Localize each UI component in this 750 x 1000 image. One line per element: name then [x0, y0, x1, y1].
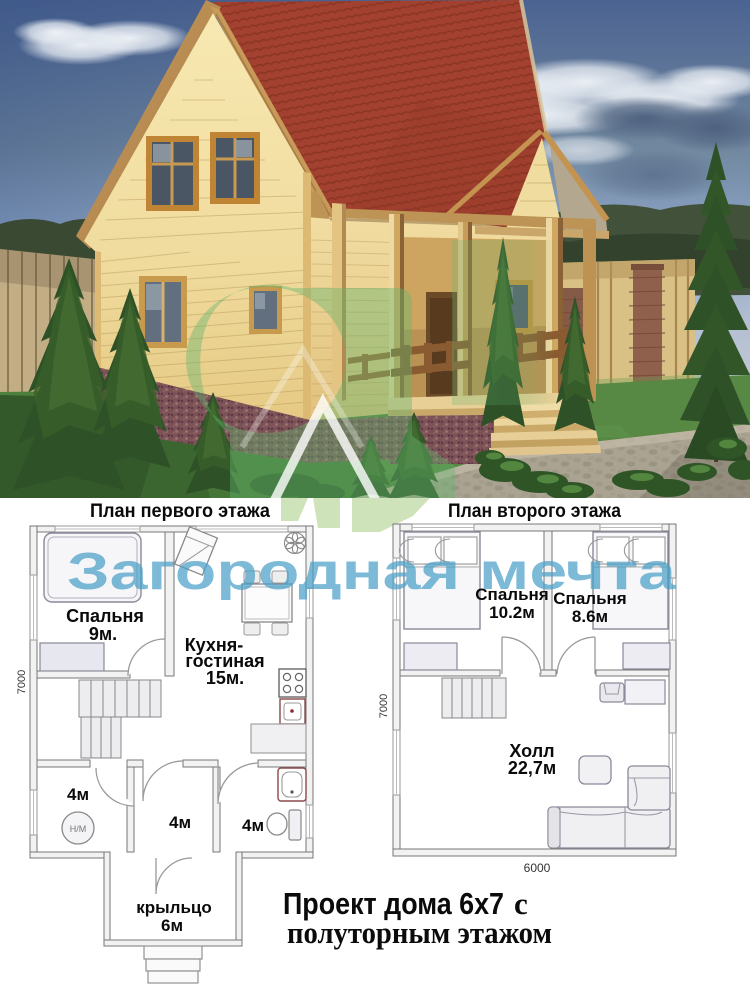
- svg-text:крыльцо: крыльцо: [136, 898, 212, 917]
- svg-text:10.2м: 10.2м: [489, 603, 535, 622]
- svg-text:4м: 4м: [67, 785, 89, 804]
- svg-text:4м: 4м: [242, 816, 264, 835]
- svg-text:полуторным этажом: полуторным этажом: [287, 915, 552, 950]
- svg-text:План первого этажа: План первого этажа: [90, 501, 270, 522]
- svg-text:4м: 4м: [169, 813, 191, 832]
- svg-text:Н/М: Н/М: [70, 824, 87, 834]
- svg-text:План второго этажа: План второго этажа: [448, 501, 621, 522]
- svg-text:9м.: 9м.: [89, 624, 117, 644]
- svg-text:7000: 7000: [16, 670, 28, 694]
- svg-text:6м: 6м: [161, 916, 183, 935]
- svg-text:15м.: 15м.: [206, 668, 244, 688]
- svg-text:6000: 6000: [524, 861, 551, 875]
- svg-text:7000: 7000: [378, 694, 390, 718]
- svg-text:Спальня: Спальня: [66, 606, 144, 626]
- svg-text:8.6м: 8.6м: [572, 607, 608, 626]
- svg-text:Загородная мечта: Загородная мечта: [67, 543, 677, 601]
- svg-text:22,7м: 22,7м: [508, 758, 556, 778]
